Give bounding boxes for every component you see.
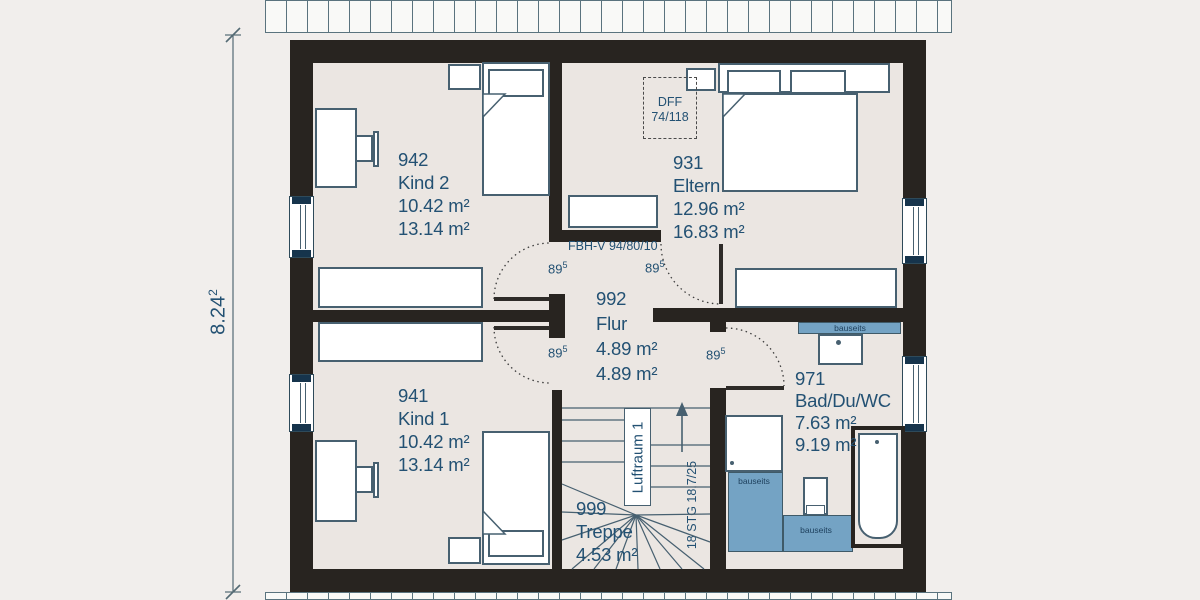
door-width-label-kind1: 895 — [548, 344, 567, 360]
room-name: Kind 1 — [398, 407, 469, 430]
room-label-flur: 992 Flur 4.89 m² 4.89 m² — [596, 286, 657, 386]
door-width-sup: 5 — [562, 344, 567, 354]
room-number: 941 — [398, 384, 469, 407]
door-width-value: 89 — [548, 261, 562, 276]
room-label-bad: 971 Bad/Du/WC 7.63 m² 9.19 m² — [795, 368, 891, 456]
door-arc-eltern — [661, 244, 721, 304]
room-name: Bad/Du/WC — [795, 390, 891, 412]
room-area-1: 7.63 m² — [795, 412, 891, 434]
room-number: 992 — [596, 286, 657, 311]
room-label-eltern: 931 Eltern 12.96 m² 16.83 m² — [673, 151, 744, 243]
door-width-value: 89 — [706, 347, 720, 362]
room-name: Treppe — [576, 520, 637, 543]
room-area-1: 4.53 m² — [576, 543, 637, 566]
room-label-kind2: 942 Kind 2 10.42 m² 13.14 m² — [398, 148, 469, 240]
onsite-label-strip: bauseits — [800, 322, 900, 334]
door-width-label-bad: 895 — [706, 346, 725, 362]
door-width-value: 89 — [645, 260, 659, 275]
room-number: 942 — [398, 148, 469, 171]
door-width-sup: 5 — [659, 259, 664, 269]
room-number: 931 — [673, 151, 744, 174]
depth-value: 8.24 — [208, 296, 230, 335]
room-number: 999 — [576, 497, 637, 520]
door-arc-bad — [726, 328, 784, 386]
door-width-sup: 5 — [720, 346, 725, 356]
door-width-sup: 5 — [562, 260, 567, 270]
door-width-label-eltern: 895 — [645, 259, 664, 275]
onsite-label-shower: bauseits — [723, 475, 785, 487]
room-label-treppe: 999 Treppe 4.53 m² — [576, 497, 637, 566]
overall-depth-label: 8.242 — [201, 272, 225, 352]
room-name: Kind 2 — [398, 171, 469, 194]
onsite-label-floor: bauseits — [785, 524, 847, 536]
room-area-1: 10.42 m² — [398, 194, 469, 217]
fold-kind2 — [483, 94, 505, 117]
door-arc-kind2 — [494, 243, 550, 299]
room-area-2: 9.19 m² — [795, 434, 891, 456]
room-area-2: 16.83 m² — [673, 220, 744, 243]
room-name: Eltern — [673, 174, 744, 197]
room-area-2: 13.14 m² — [398, 217, 469, 240]
fold-eltern — [723, 94, 745, 117]
room-label-kind1: 941 Kind 1 10.42 m² 13.14 m² — [398, 384, 469, 476]
room-area-1: 4.89 m² — [596, 336, 657, 361]
fold-kind1 — [483, 511, 505, 534]
door-arc-kind1 — [494, 327, 550, 383]
depth-sup: 2 — [206, 289, 220, 296]
room-area-1: 10.42 m² — [398, 430, 469, 453]
room-number: 971 — [795, 368, 891, 390]
room-name: Flur — [596, 311, 657, 336]
room-area-2: 4.89 m² — [596, 361, 657, 386]
floor-heating-label: FBH-V 94/80/10 — [568, 239, 658, 253]
door-width-value: 89 — [548, 345, 562, 360]
floor-plan: DFF 74/118 Luftraum 1 18 STG 18,7/25 — [0, 0, 1200, 600]
room-area-2: 13.14 m² — [398, 453, 469, 476]
room-area-1: 12.96 m² — [673, 197, 744, 220]
door-width-label-kind2: 895 — [548, 260, 567, 276]
